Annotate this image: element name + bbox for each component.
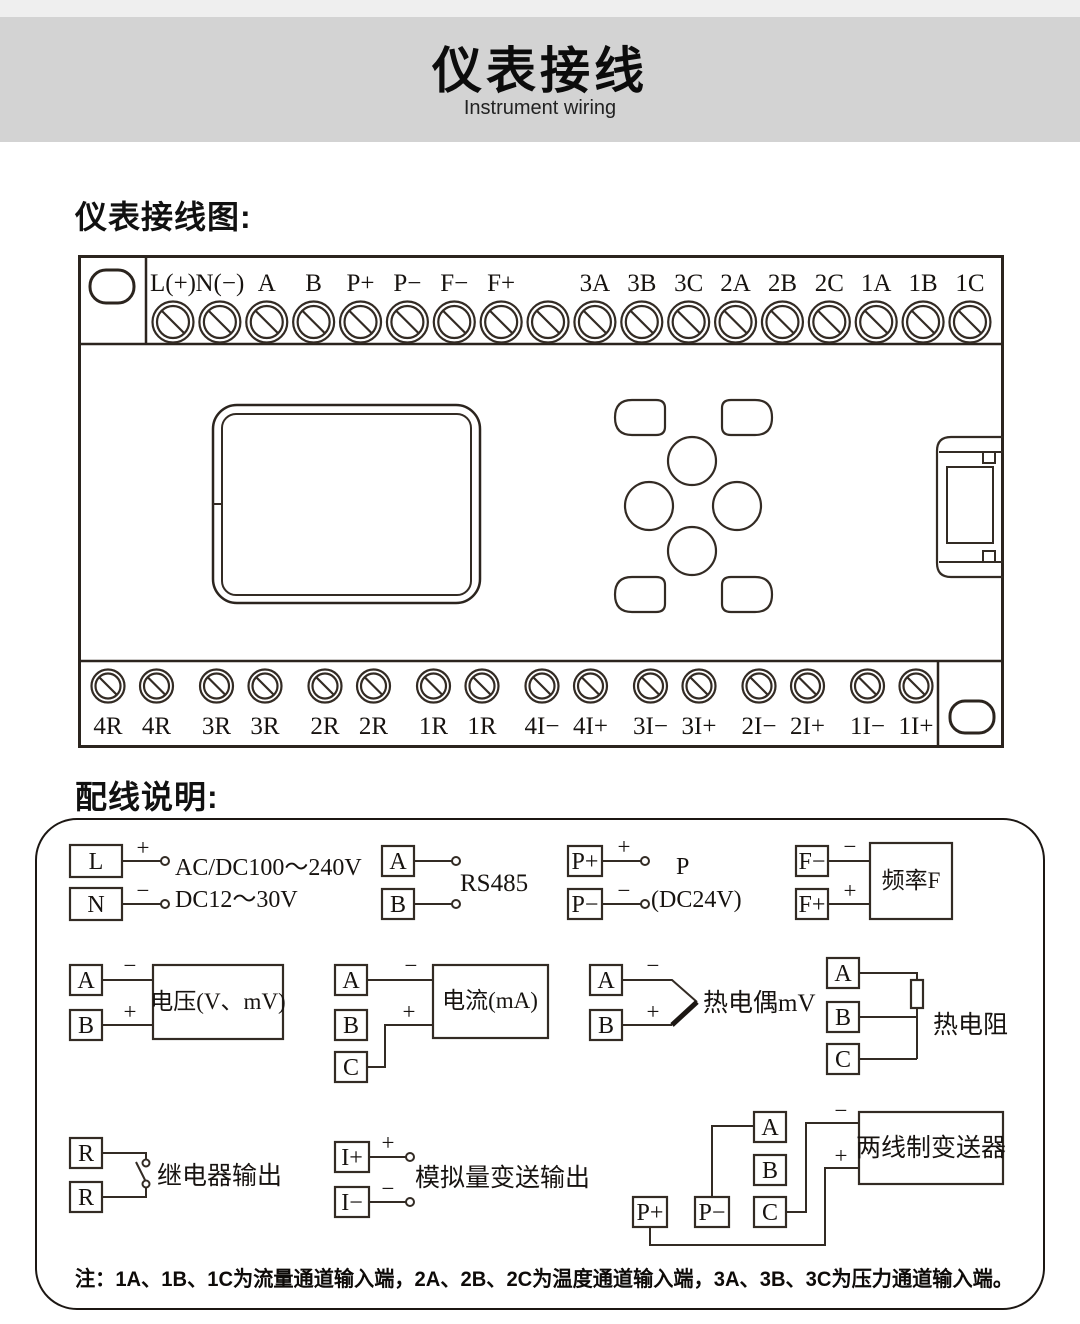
screw-terminal-icon (809, 302, 850, 343)
top-terminal-label: 1C (955, 270, 984, 297)
plus-sign: + (843, 878, 856, 903)
wiring-svg: L N + − AC/DC100～240V DC12～30V A B RS485 (35, 818, 1045, 1310)
top-terminal-label: P+ (347, 270, 375, 297)
terminal-box-P-minus: P− (571, 892, 598, 918)
plus-sign: + (136, 835, 149, 860)
minus-sign: − (646, 953, 659, 978)
wiring-current: A B C − + 电流(mA) (335, 953, 548, 1082)
bottom-terminal-label: 1I− (850, 713, 885, 740)
top-terminal-label: 1B (908, 270, 937, 297)
power-range-2: DC12～30V (175, 887, 298, 913)
wiring-rs485: A B RS485 (382, 846, 528, 919)
wiring-relay: R R 继电器输出 (70, 1138, 282, 1212)
top-terminal-label: 2B (768, 270, 797, 297)
top-terminal-label: 1A (861, 270, 892, 297)
bottom-terminal-label: 1R (419, 713, 449, 740)
screw-terminal-icon (387, 302, 428, 343)
key-bottom-right[interactable] (722, 577, 772, 612)
analog-output-label: 模拟量变送输出 (415, 1164, 590, 1192)
top-terminal-label: N(−) (195, 270, 244, 297)
screw-terminal-icon (903, 302, 944, 343)
terminal-box-F-minus: F− (798, 849, 825, 875)
rtd-label: 热电阻 (933, 1011, 1008, 1039)
terminal-box-A: A (342, 968, 360, 994)
terminal-box-B: B (597, 1013, 613, 1039)
top-terminal-label: 3B (627, 270, 656, 297)
plus-sign: + (381, 1130, 394, 1155)
minus-sign: − (136, 878, 149, 903)
terminal-box-L: L (88, 849, 103, 875)
p24-label: P (676, 854, 689, 880)
screw-terminal-icon (528, 302, 569, 343)
minus-sign: − (617, 878, 630, 903)
rs485-label: RS485 (460, 870, 528, 897)
terminal-box-C: C (761, 1200, 777, 1226)
keypad (615, 400, 772, 612)
top-terminal-label: 2C (815, 270, 844, 297)
plus-sign: + (617, 834, 630, 859)
terminal-box-N: N (87, 892, 104, 918)
top-terminal-label: 3C (674, 270, 703, 297)
terminal-box-C: C (342, 1055, 358, 1081)
terminal-box-A: A (834, 961, 852, 987)
key-bottom-left[interactable] (615, 577, 665, 612)
diagram-heading: 仪表接线图: (75, 192, 252, 238)
wiring-voltage: A B − + 电压(V、mV) (70, 953, 286, 1040)
screw-terminal-icon (851, 670, 884, 703)
bottom-terminal-label: 4I− (525, 713, 560, 740)
screw-terminal-icon (762, 302, 803, 343)
plus-sign: + (834, 1143, 847, 1168)
key-top-left[interactable] (615, 400, 665, 435)
page-subtitle: Instrument wiring (0, 97, 1080, 120)
bottom-terminal-row: 4R4R3R3R2R2R1R1R4I−4I+3I−3I+2I−2I+1I−1I+ (92, 670, 934, 741)
channel-note: 注：1A、1B、1C为流量通道输入端，2A、2B、2C为温度通道输入端，3A、3… (75, 1267, 1013, 1291)
bottom-terminal-label: 2I− (742, 713, 777, 740)
terminal-box-P-minus: P− (698, 1200, 725, 1226)
terminal-box-A: A (761, 1115, 779, 1141)
wiring-freq: F− F+ − + 频率F (796, 834, 952, 919)
instrument-svg: L(+)N(−)ABP+P−F−F+3A3B3C2A2B2C1A1B1C 4R4… (78, 255, 1004, 748)
screw-terminal-icon (683, 670, 716, 703)
minus-sign: − (381, 1176, 394, 1201)
terminal-box-I-plus: I+ (341, 1145, 363, 1171)
screw-terminal-icon (574, 670, 607, 703)
bottom-terminal-label: 4R (142, 713, 172, 740)
plus-sign: + (402, 999, 415, 1024)
voltage-box-label: 电压(V、mV) (150, 989, 285, 1014)
wiring-instructions-box: L N + − AC/DC100～240V DC12～30V A B RS485 (35, 818, 1045, 1310)
bottom-terminal-label: 3R (202, 713, 232, 740)
top-terminal-label: L(+) (150, 270, 196, 297)
screw-terminal-icon (153, 302, 194, 343)
minus-sign: − (404, 953, 417, 978)
top-terminal-label: 3A (580, 270, 611, 297)
mount-hole-bottom-right (950, 701, 994, 733)
top-terminal-row: L(+)N(−)ABP+P−F−F+3A3B3C2A2B2C1A1B1C (150, 270, 990, 343)
instrument-diagram: L(+)N(−)ABP+P−F−F+3A3B3C2A2B2C1A1B1C 4R4… (78, 255, 1004, 748)
screw-terminal-icon (743, 670, 776, 703)
screw-terminal-icon (791, 670, 824, 703)
wiring-analog-output: I+ I− + − 模拟量变送输出 (335, 1130, 590, 1217)
key-top-right[interactable] (722, 400, 772, 435)
key-left[interactable] (625, 482, 673, 530)
bottom-terminal-label: 3I− (633, 713, 668, 740)
minus-sign: − (843, 834, 856, 859)
screw-terminal-icon (140, 670, 173, 703)
terminal-box-I-minus: I− (341, 1190, 363, 1216)
screw-terminal-icon (634, 670, 667, 703)
top-terminal-label: A (258, 270, 276, 297)
terminal-box-B: B (389, 892, 405, 918)
wiring-heading: 配线说明: (75, 772, 219, 818)
wiring-transmitter: P+ P− A B C − + 两线制变送器 (633, 1098, 1006, 1245)
thermocouple-label: 热电偶mV (703, 989, 816, 1017)
resistor-symbol (911, 980, 923, 1008)
plus-sign: + (646, 999, 659, 1024)
relay-label: 继电器输出 (157, 1162, 282, 1190)
top-terminal-label: 2A (720, 270, 751, 297)
terminal-box-B: B (761, 1158, 777, 1184)
screw-terminal-icon (526, 670, 559, 703)
screw-terminal-icon (621, 302, 662, 343)
freq-box-label: 频率F (881, 868, 940, 893)
display-window (213, 405, 480, 603)
screw-terminal-icon (249, 670, 282, 703)
terminal-box-P-plus: P+ (571, 849, 598, 875)
terminal-box-B: B (342, 1013, 358, 1039)
screw-terminal-icon (715, 302, 756, 343)
screw-terminal-icon (309, 670, 342, 703)
screw-terminal-icon (199, 302, 240, 343)
minus-sign: − (123, 953, 136, 978)
terminal-box-B: B (834, 1005, 850, 1031)
key-up[interactable] (668, 437, 716, 485)
bottom-terminal-label: 2I+ (790, 713, 825, 740)
top-terminal-label: F+ (487, 270, 515, 297)
page-header: 仪表接线 Instrument wiring (0, 17, 1080, 142)
screw-terminal-icon (340, 302, 381, 343)
screw-terminal-icon (856, 302, 897, 343)
screw-terminal-icon (200, 670, 233, 703)
top-terminal-label: B (305, 270, 322, 297)
screw-terminal-icon (949, 302, 990, 343)
top-strip (0, 0, 1080, 17)
key-right[interactable] (713, 482, 761, 530)
wiring-power: L N + − AC/DC100～240V DC12～30V (70, 835, 362, 920)
screw-terminal-icon (668, 302, 709, 343)
screw-terminal-icon (417, 670, 450, 703)
manual-page: 仪表接线 Instrument wiring 仪表接线图: L(+)N(−)AB… (0, 0, 1080, 1324)
bottom-terminal-label: 4I+ (573, 713, 608, 740)
screw-terminal-icon (246, 302, 287, 343)
screw-terminal-icon (900, 670, 933, 703)
screw-terminal-icon (481, 302, 522, 343)
page-title: 仪表接线 (0, 31, 1080, 103)
top-terminal-label: P− (393, 270, 421, 297)
key-down[interactable] (668, 527, 716, 575)
wiring-thermocouple: A B − + 热电偶mV (590, 953, 816, 1040)
mount-hole-top-left (90, 270, 134, 303)
wiring-rtd: A B C 热电阻 (827, 958, 1008, 1074)
minus-sign: − (834, 1098, 847, 1123)
bottom-terminal-label: 2R (359, 713, 389, 740)
bottom-terminal-label: 1I+ (899, 713, 934, 740)
power-range-1: AC/DC100～240V (175, 855, 362, 881)
screw-terminal-icon (466, 670, 499, 703)
plus-sign: + (123, 999, 136, 1024)
screw-terminal-icon (434, 302, 475, 343)
current-box-label: 电流(mA) (442, 988, 538, 1013)
bottom-terminal-label: 1R (467, 713, 497, 740)
terminal-box-A: A (389, 849, 407, 875)
terminal-box-A: A (77, 968, 95, 994)
top-terminal-label: F− (440, 270, 468, 297)
terminal-box-C: C (834, 1047, 850, 1073)
screw-terminal-icon (293, 302, 334, 343)
bottom-terminal-label: 3I+ (682, 713, 717, 740)
bottom-terminal-label: 4R (93, 713, 123, 740)
bottom-terminal-label: 3R (250, 713, 280, 740)
wiring-p24: P+ P− + − P (DC24V) (568, 834, 742, 919)
screw-terminal-icon (92, 670, 125, 703)
screw-terminal-icon (574, 302, 615, 343)
screw-terminal-icon (357, 670, 390, 703)
terminal-box-F-plus: F+ (798, 892, 825, 918)
p24-voltage-label: (DC24V) (651, 887, 742, 913)
terminal-box-P-plus: P+ (636, 1200, 663, 1226)
terminal-box-B: B (77, 1013, 93, 1039)
terminal-box-A: A (597, 968, 615, 994)
terminal-box-R: R (77, 1185, 93, 1211)
terminal-box-R: R (77, 1141, 93, 1167)
side-connector (937, 437, 1003, 577)
transmitter-box-label: 两线制变送器 (855, 1134, 1005, 1162)
bottom-terminal-label: 2R (310, 713, 340, 740)
